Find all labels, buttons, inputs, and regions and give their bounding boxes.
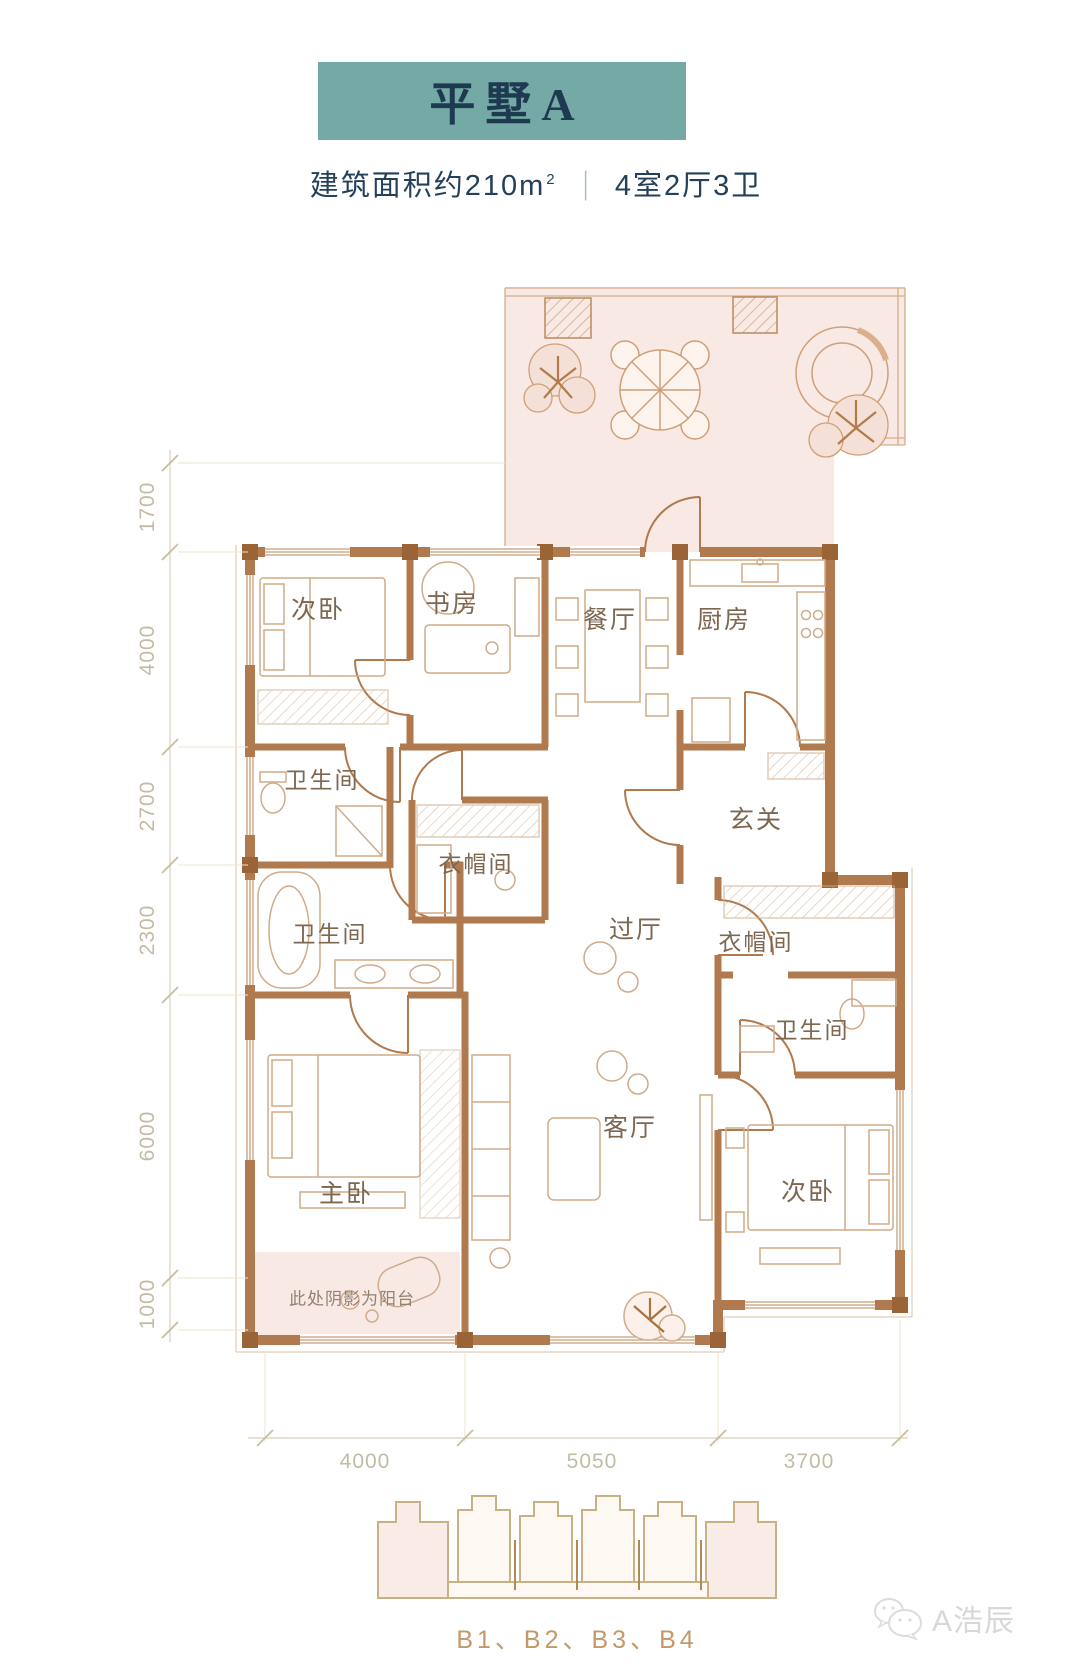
room-label-bathroom-2: 卫生间 bbox=[293, 915, 368, 949]
room-label-living-room: 客厅 bbox=[603, 1108, 657, 1144]
watermark-text: A浩辰 bbox=[932, 1596, 1015, 1640]
dim-left-4000: 4000 bbox=[136, 625, 160, 676]
wardrobe-icon bbox=[417, 805, 539, 837]
kitchen-counter-icon bbox=[690, 559, 825, 742]
watermark: A浩辰 bbox=[872, 1596, 1015, 1640]
floor-plan-svg bbox=[0, 0, 1072, 1667]
room-label-bathroom-1: 卫生间 bbox=[285, 761, 360, 795]
dim-left-1700: 1700 bbox=[136, 482, 160, 533]
dim-left-1000: 1000 bbox=[136, 1279, 160, 1330]
room-label-bathroom-3: 卫生间 bbox=[775, 1011, 850, 1045]
tree-icon bbox=[624, 1292, 685, 1341]
terrace-table-icon bbox=[611, 341, 709, 439]
dim-bottom-5050: 5050 bbox=[567, 1450, 618, 1474]
terrace bbox=[505, 287, 905, 552]
shoe-cabinet-icon bbox=[768, 753, 824, 779]
dim-bottom-3700: 3700 bbox=[784, 1450, 835, 1474]
room-label-dining-room: 餐厅 bbox=[583, 600, 637, 636]
wardrobe-icon bbox=[258, 690, 388, 724]
dim-left-2700: 2700 bbox=[136, 781, 160, 832]
wardrobe-icon bbox=[724, 886, 894, 918]
room-label-secondary-bedroom-2: 次卧 bbox=[781, 1172, 835, 1208]
terrace-column-icon bbox=[733, 297, 777, 333]
room-label-kitchen: 厨房 bbox=[697, 600, 751, 636]
floorplan-page: 平墅A 建筑面积约210m2 | 4室2厅3卫 bbox=[0, 0, 1072, 1667]
balcony-note: 此处阴影为阳台 bbox=[289, 1285, 415, 1310]
dim-left-6000: 6000 bbox=[136, 1111, 160, 1162]
sofa-icon bbox=[472, 1051, 712, 1268]
room-label-secondary-bedroom-1: 次卧 bbox=[291, 590, 345, 626]
wardrobe-icon bbox=[420, 1050, 460, 1218]
room-label-master-bedroom: 主卧 bbox=[319, 1174, 373, 1210]
room-label-study: 书房 bbox=[425, 584, 479, 620]
room-label-hallway: 过厅 bbox=[609, 910, 663, 946]
terrace-column-icon bbox=[545, 298, 591, 338]
dim-bottom-4000: 4000 bbox=[340, 1450, 391, 1474]
keyplan-caption: B1、B2、B3、B4 bbox=[456, 1620, 697, 1656]
room-label-cloakroom-2: 衣帽间 bbox=[719, 923, 794, 957]
plant-icon bbox=[584, 942, 638, 992]
room-label-cloakroom-1: 衣帽间 bbox=[439, 845, 514, 879]
wechat-logo-icon bbox=[872, 1596, 924, 1640]
room-label-entry: 玄关 bbox=[729, 800, 783, 836]
furniture bbox=[258, 559, 896, 1341]
key-plan bbox=[378, 1496, 776, 1598]
dim-left-2300: 2300 bbox=[136, 905, 160, 956]
